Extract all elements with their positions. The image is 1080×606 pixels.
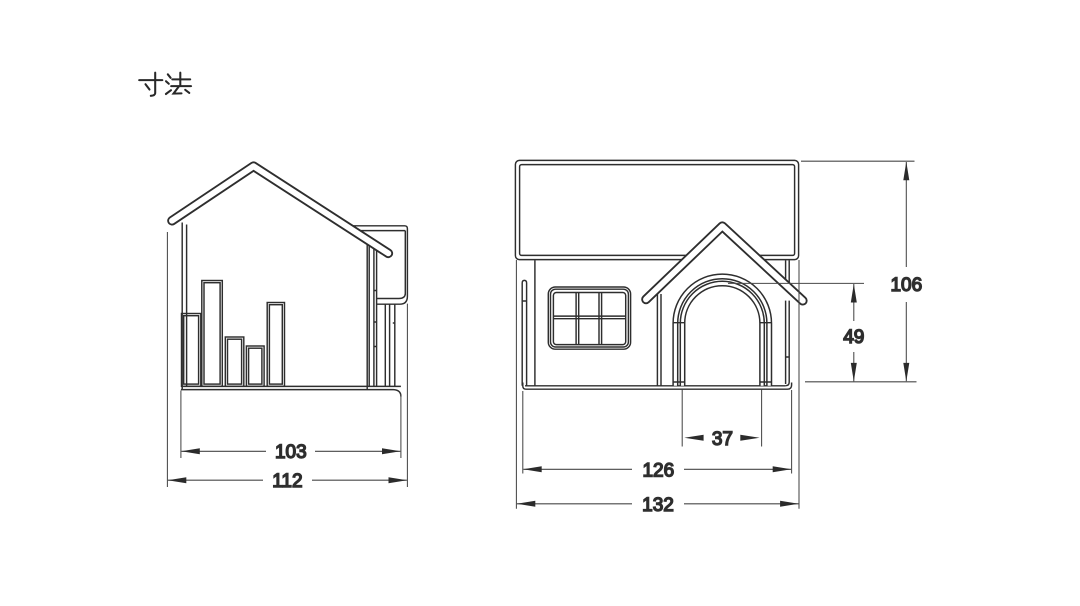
svg-text:106: 106 (890, 275, 922, 296)
svg-text:132: 132 (642, 495, 674, 516)
svg-text:103: 103 (275, 442, 307, 463)
svg-text:112: 112 (272, 471, 302, 492)
svg-text:37: 37 (712, 429, 733, 450)
svg-text:49: 49 (843, 327, 864, 348)
svg-text:126: 126 (642, 460, 674, 481)
